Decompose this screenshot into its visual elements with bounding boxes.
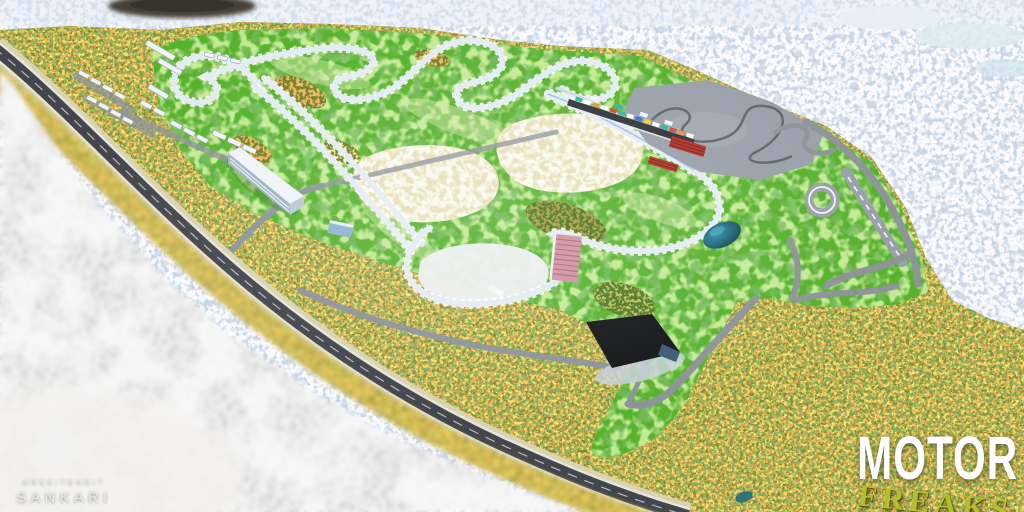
triskelion-logo-icon — [12, 411, 96, 475]
aerial-render: ARKKITEHDIT SANKARI MOTOR FREAKS — [0, 0, 1024, 512]
architect-logo[interactable]: ARKKITEHDIT SANKARI — [12, 411, 116, 506]
watermark-logo[interactable]: MOTOR FREAKS — [828, 444, 1018, 510]
architect-name-large: SANKARI — [12, 490, 116, 506]
logo-arm — [43, 435, 84, 470]
architect-name-small: ARKKITEHDIT — [12, 477, 116, 486]
forest-clearing — [915, 23, 1024, 49]
light-glow — [80, 0, 900, 420]
